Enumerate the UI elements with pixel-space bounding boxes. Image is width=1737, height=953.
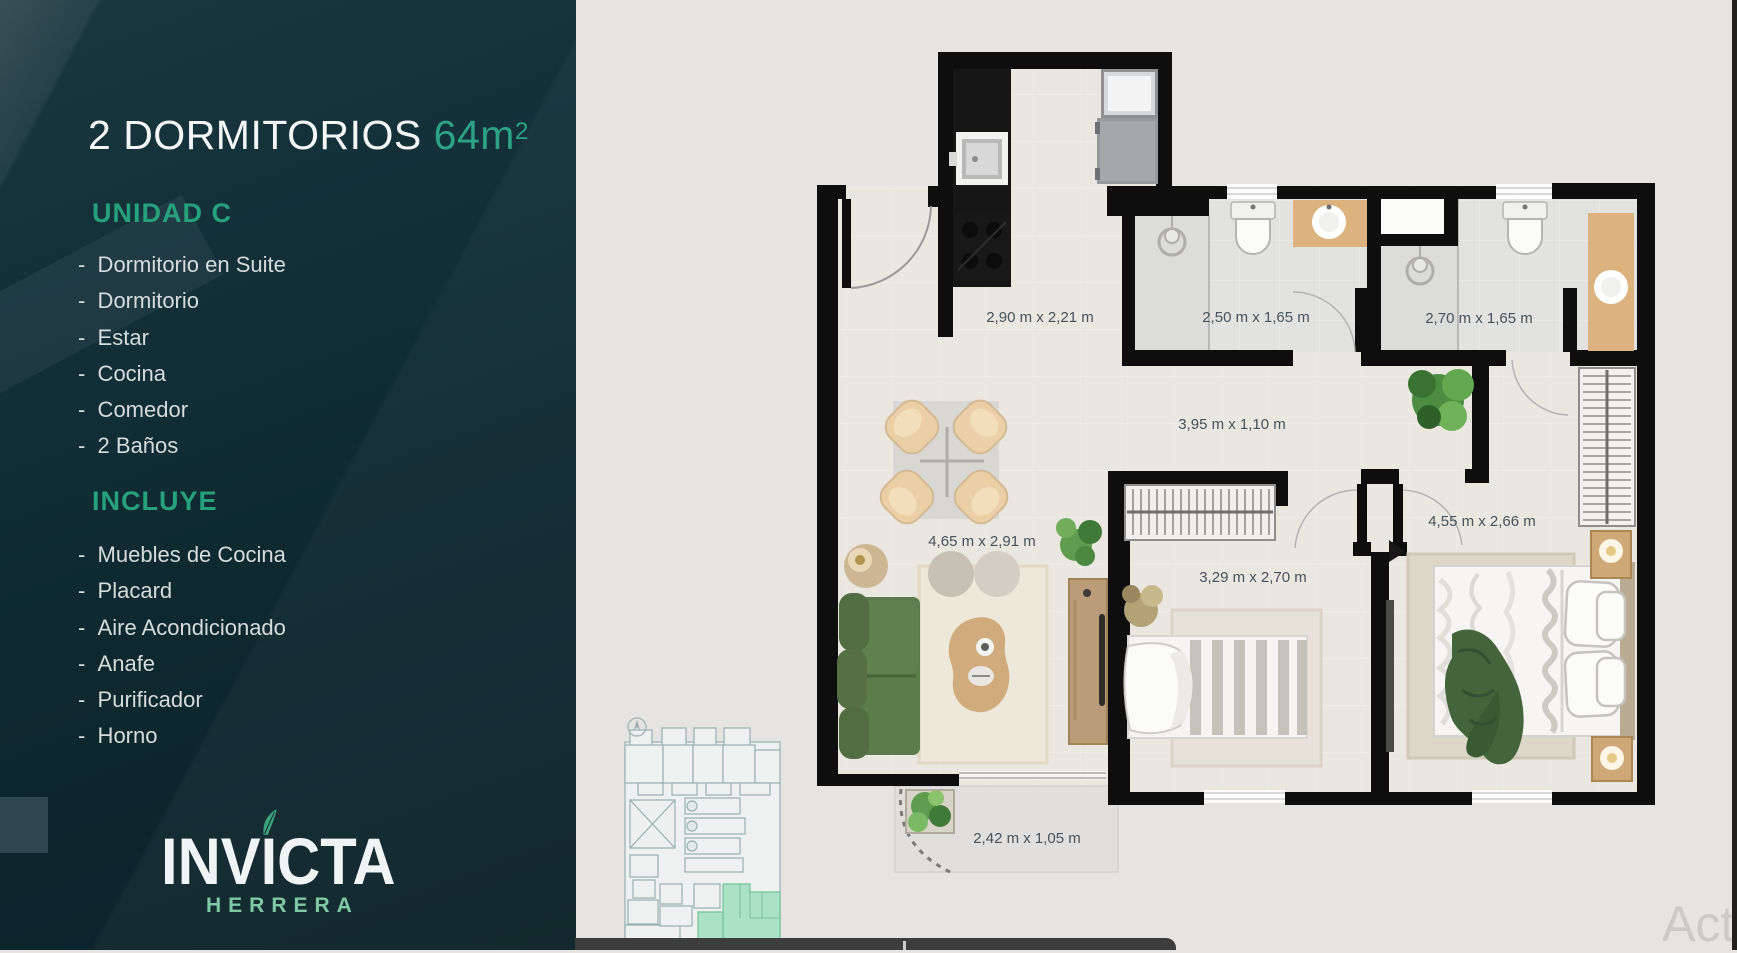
svg-text:3,29 m x 2,70 m: 3,29 m x 2,70 m: [1199, 569, 1307, 586]
svg-text:2,50 m x 1,65 m: 2,50 m x 1,65 m: [1202, 309, 1310, 326]
svg-text:3,95 m x 1,10 m: 3,95 m x 1,10 m: [1178, 416, 1286, 433]
svg-text:4,55 m x 2,66 m: 4,55 m x 2,66 m: [1428, 513, 1536, 530]
svg-text:2,42 m x 1,05 m: 2,42 m x 1,05 m: [973, 830, 1081, 847]
svg-text:2,90 m x 2,21 m: 2,90 m x 2,21 m: [986, 309, 1094, 326]
svg-text:4,65 m x 2,91 m: 4,65 m x 2,91 m: [928, 533, 1036, 550]
svg-text:2,70 m x 1,65 m: 2,70 m x 1,65 m: [1425, 310, 1533, 327]
